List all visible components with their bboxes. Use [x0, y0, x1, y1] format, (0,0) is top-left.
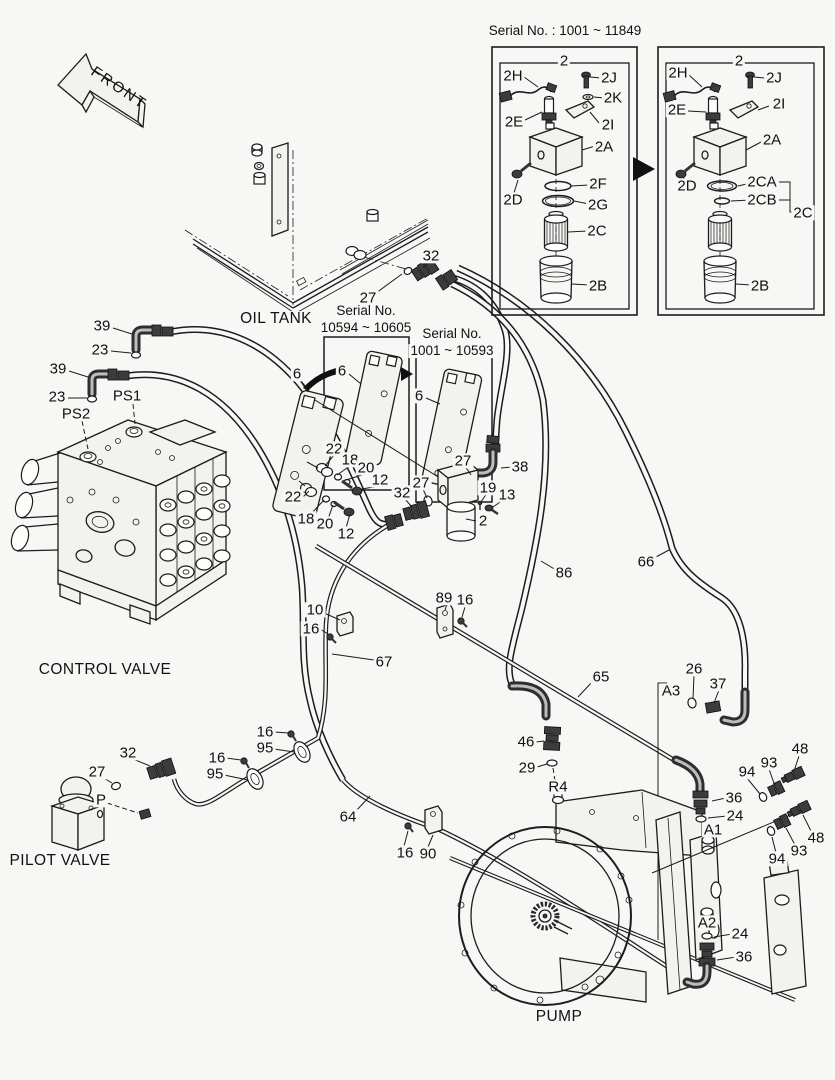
oil-tank-frame — [185, 143, 430, 313]
pump-drawing — [458, 790, 806, 1005]
diagram-art: FRONT — [0, 0, 835, 1080]
front-arrow-icon: FRONT — [58, 54, 150, 127]
arrowhead-icon — [401, 367, 413, 381]
control-valve-drawing — [8, 420, 230, 624]
replacement-arrow-icon — [633, 157, 655, 181]
parts-diagram-page: FRONT — [0, 0, 835, 1080]
pilot-valve-drawing — [52, 777, 151, 850]
serial-note-boxes — [492, 47, 824, 315]
swoosh-arrow-icon — [303, 368, 338, 391]
